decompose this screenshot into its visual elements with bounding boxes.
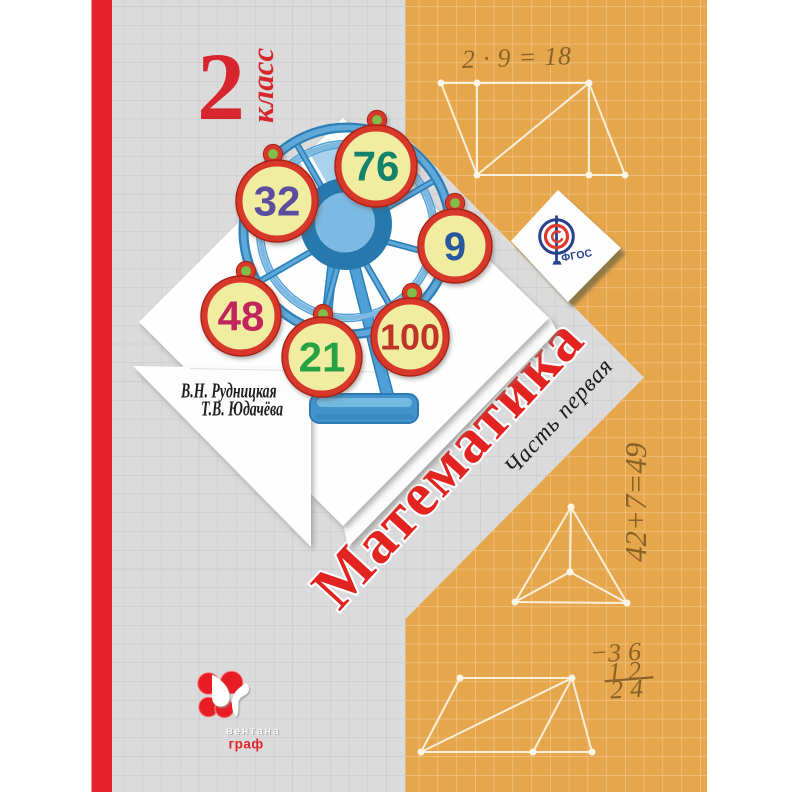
svg-text:9: 9 bbox=[444, 225, 466, 269]
svg-text:24: 24 bbox=[609, 673, 650, 704]
svg-text:2: 2 bbox=[197, 33, 245, 140]
svg-text:48: 48 bbox=[218, 293, 265, 340]
svg-text:21: 21 bbox=[299, 334, 346, 381]
svg-text:42+7=49: 42+7=49 bbox=[618, 443, 653, 562]
svg-text:2 · 9 = 18: 2 · 9 = 18 bbox=[461, 41, 572, 74]
svg-text:класс: класс bbox=[245, 47, 280, 123]
svg-text:−: − bbox=[589, 638, 608, 668]
svg-text:граф: граф bbox=[229, 737, 264, 752]
svg-text:32: 32 bbox=[254, 178, 301, 225]
svg-text:100: 100 bbox=[380, 317, 440, 358]
svg-text:Т.В. Юдачёва: Т.В. Юдачёва bbox=[201, 397, 283, 421]
svg-text:76: 76 bbox=[353, 143, 400, 190]
